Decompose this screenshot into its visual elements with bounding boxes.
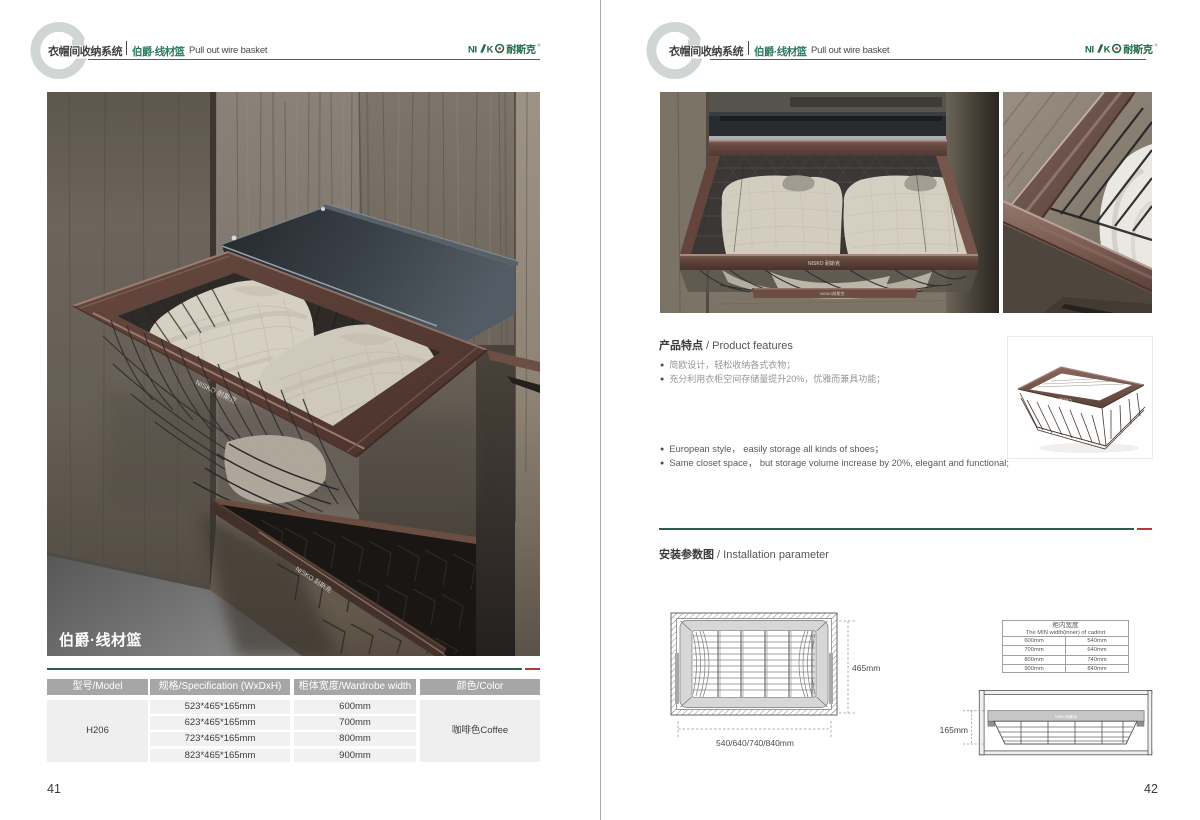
svg-text:®: ®: [1155, 43, 1158, 48]
svg-text:NISKO: NISKO: [1059, 396, 1072, 403]
svg-text:NI: NI: [1085, 44, 1094, 54]
svg-text:K: K: [487, 44, 494, 54]
svg-text:165mm: 165mm: [940, 725, 968, 735]
svg-text:耐斯克: 耐斯克: [506, 43, 536, 55]
svg-text:K: K: [1104, 44, 1111, 54]
svg-text:NISKO耐斯克: NISKO耐斯克: [1055, 714, 1077, 719]
svg-text:NISKO耐斯克: NISKO耐斯克: [820, 290, 844, 296]
svg-text:NISKO 耐斯克: NISKO 耐斯克: [808, 260, 840, 267]
svg-text:耐斯克: 耐斯克: [1123, 43, 1153, 55]
svg-text:465mm: 465mm: [852, 663, 880, 673]
svg-text:540/640/740/840mm: 540/640/740/840mm: [716, 738, 794, 748]
svg-text:NI: NI: [468, 44, 477, 54]
svg-text:®: ®: [538, 43, 541, 48]
